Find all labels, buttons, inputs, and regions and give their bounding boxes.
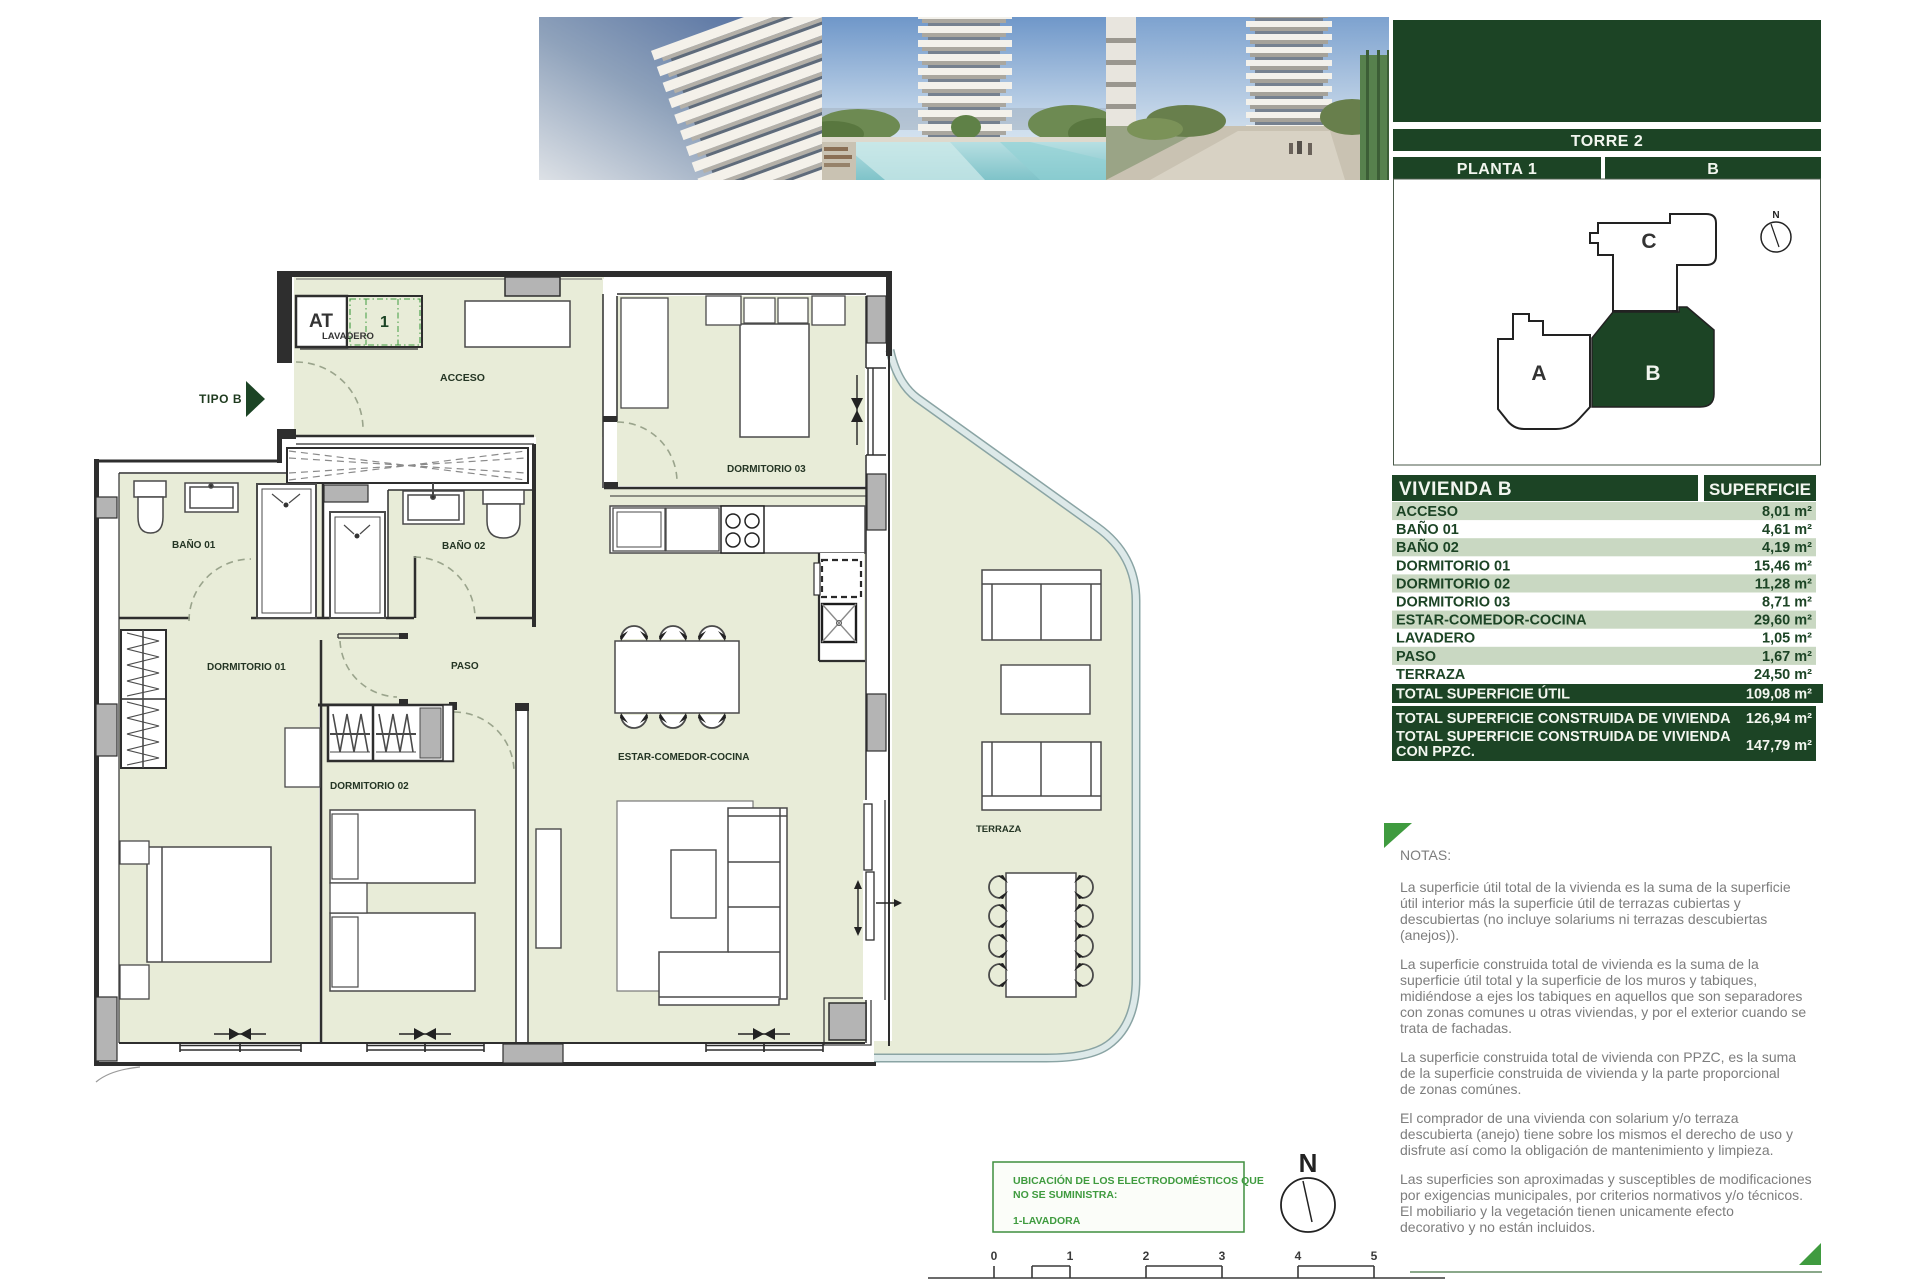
svg-text:La superficie útil total de la: La superficie útil total de la vivienda … — [1400, 879, 1791, 895]
svg-text:LAVADERO: LAVADERO — [1396, 631, 1475, 647]
svg-text:BAÑO 02: BAÑO 02 — [442, 539, 486, 552]
svg-text:A: A — [1531, 362, 1546, 385]
svg-text:AT: AT — [309, 311, 333, 332]
svg-text:2: 2 — [1143, 1249, 1150, 1263]
svg-text:(anejos)).: (anejos)). — [1400, 927, 1459, 943]
svg-text:4: 4 — [1295, 1249, 1302, 1263]
svg-text:disfrute así como la obligació: disfrute así como la obligación de mante… — [1400, 1142, 1774, 1158]
svg-text:midiéndose a ejes los tabiques: midiéndose a ejes los tabiques en aquell… — [1400, 988, 1802, 1004]
svg-text:TOTAL SUPERFICIE CONSTRUIDA DE: TOTAL SUPERFICIE CONSTRUIDA DE VIVIENDA — [1396, 729, 1731, 745]
svg-text:24,50 m²: 24,50 m² — [1754, 667, 1812, 683]
svg-text:147,79 m²: 147,79 m² — [1746, 738, 1812, 754]
svg-text:B: B — [1707, 161, 1719, 178]
svg-text:4,61 m²: 4,61 m² — [1762, 522, 1812, 538]
svg-text:La superficie construida total: La superficie construida total de vivien… — [1400, 1049, 1796, 1065]
svg-text:DORMITORIO 01: DORMITORIO 01 — [1396, 558, 1510, 574]
svg-text:29,60 m²: 29,60 m² — [1754, 613, 1812, 629]
svg-text:El comprador de una vivienda c: El comprador de una vivienda con solariu… — [1400, 1110, 1739, 1126]
svg-text:trata de fachadas.: trata de fachadas. — [1400, 1020, 1512, 1036]
svg-text:decorativo y no están incluido: decorativo y no están incluidos. — [1400, 1219, 1595, 1235]
svg-text:1,67 m²: 1,67 m² — [1762, 649, 1812, 665]
svg-text:N: N — [1772, 210, 1779, 221]
svg-text:PLANTA 1: PLANTA 1 — [1457, 161, 1537, 178]
svg-text:descubierta (anejo) tiene sobr: descubierta (anejo) tiene sobre los mism… — [1400, 1126, 1793, 1142]
svg-text:BAÑO 01: BAÑO 01 — [1396, 520, 1459, 538]
svg-text:NOTAS:: NOTAS: — [1400, 847, 1451, 863]
svg-text:DORMITORIO 02: DORMITORIO 02 — [1396, 576, 1510, 592]
svg-text:TERRAZA: TERRAZA — [1396, 667, 1466, 683]
svg-text:superficie útil total y la sup: superficie útil total y la superficie de… — [1400, 972, 1757, 988]
svg-text:Las superficies son aproximada: Las superficies son aproximadas y suscep… — [1400, 1171, 1812, 1187]
svg-text:CON PPZC.: CON PPZC. — [1396, 744, 1475, 760]
svg-text:1: 1 — [380, 314, 389, 331]
svg-text:8,71 m²: 8,71 m² — [1762, 595, 1812, 611]
svg-text:por exigencias municipales, po: por exigencias municipales, por criterio… — [1400, 1187, 1803, 1203]
svg-text:8,01 m²: 8,01 m² — [1762, 504, 1812, 520]
svg-text:15,46 m²: 15,46 m² — [1754, 558, 1812, 574]
svg-text:LAVADERO: LAVADERO — [322, 331, 374, 342]
svg-text:1: 1 — [1067, 1249, 1074, 1263]
svg-text:TOTAL SUPERFICIE ÚTIL: TOTAL SUPERFICIE ÚTIL — [1396, 685, 1570, 703]
svg-text:1,05 m²: 1,05 m² — [1762, 631, 1812, 647]
svg-text:1-LAVADORA: 1-LAVADORA — [1013, 1215, 1081, 1227]
svg-text:El mobiliario y la vegetación: El mobiliario y la vegetación tienen uni… — [1400, 1203, 1734, 1219]
svg-text:VIVIENDA B: VIVIENDA B — [1399, 479, 1512, 500]
svg-text:TIPO B: TIPO B — [199, 392, 242, 406]
svg-text:de zonas comúnes.: de zonas comúnes. — [1400, 1081, 1521, 1097]
svg-text:de la superficie construida de: de la superficie construida de vivienda … — [1400, 1065, 1780, 1081]
svg-text:5: 5 — [1371, 1249, 1378, 1263]
svg-text:PASO: PASO — [1396, 649, 1436, 665]
svg-text:TORRE 2: TORRE 2 — [1571, 133, 1644, 150]
svg-text:C: C — [1641, 230, 1656, 253]
svg-text:SUPERFICIE: SUPERFICIE — [1709, 480, 1811, 499]
svg-text:3: 3 — [1219, 1249, 1226, 1263]
svg-text:ESTAR-COMEDOR-COCINA: ESTAR-COMEDOR-COCINA — [1396, 613, 1587, 629]
svg-text:BAÑO 02: BAÑO 02 — [1396, 538, 1459, 556]
svg-text:TOTAL SUPERFICIE CONSTRUIDA DE: TOTAL SUPERFICIE CONSTRUIDA DE VIVIENDA — [1396, 711, 1731, 727]
svg-text:La superficie construida total: La superficie construida total de vivien… — [1400, 956, 1759, 972]
svg-text:NO SE SUMINISTRA:: NO SE SUMINISTRA: — [1013, 1189, 1117, 1201]
svg-text:UBICACIÓN DE LOS ELECTRODOMÉST: UBICACIÓN DE LOS ELECTRODOMÉSTICOS QUE — [1013, 1174, 1264, 1187]
svg-text:ACCESO: ACCESO — [1396, 504, 1458, 520]
svg-text:DORMITORIO 03: DORMITORIO 03 — [1396, 595, 1510, 611]
svg-text:con zonas comunes u otras vivi: con zonas comunes u otras viviendas, y p… — [1400, 1004, 1806, 1020]
svg-text:126,94 m²: 126,94 m² — [1746, 711, 1812, 727]
svg-text:DORMITORIO 02: DORMITORIO 02 — [330, 781, 409, 792]
svg-text:BAÑO 01: BAÑO 01 — [172, 538, 216, 551]
svg-text:DORMITORIO 01: DORMITORIO 01 — [207, 662, 286, 673]
svg-text:0: 0 — [991, 1249, 998, 1263]
svg-text:4,19 m²: 4,19 m² — [1762, 540, 1812, 556]
svg-text:11,28 m²: 11,28 m² — [1755, 576, 1812, 592]
svg-text:N: N — [1299, 1148, 1318, 1178]
svg-text:descubiertas (no incluye solar: descubiertas (no incluye solariums ni te… — [1400, 911, 1767, 927]
svg-text:útil interior más la superfici: útil interior más la superficie útil de … — [1400, 895, 1741, 911]
svg-text:PASO: PASO — [451, 661, 479, 672]
svg-text:109,08 m²: 109,08 m² — [1746, 687, 1812, 703]
svg-text:B: B — [1645, 362, 1660, 385]
svg-text:DORMITORIO 03: DORMITORIO 03 — [727, 464, 806, 475]
svg-text:TERRAZA: TERRAZA — [976, 824, 1022, 835]
svg-text:ACCESO: ACCESO — [440, 372, 485, 384]
svg-text:ESTAR-COMEDOR-COCINA: ESTAR-COMEDOR-COCINA — [618, 752, 749, 763]
